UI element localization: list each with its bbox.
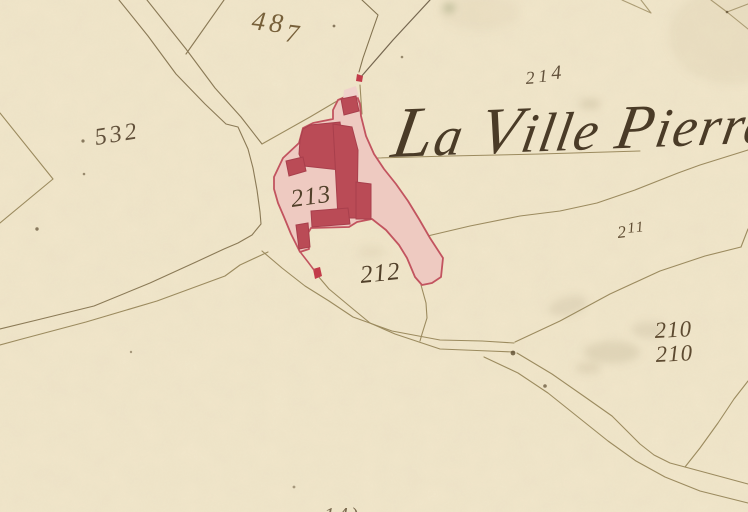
svg-text:210: 210 (654, 316, 693, 343)
svg-text:14): 14) (324, 503, 361, 512)
svg-text:212: 212 (359, 258, 402, 289)
svg-text:210: 210 (655, 340, 694, 367)
svg-text:213: 213 (289, 181, 333, 213)
